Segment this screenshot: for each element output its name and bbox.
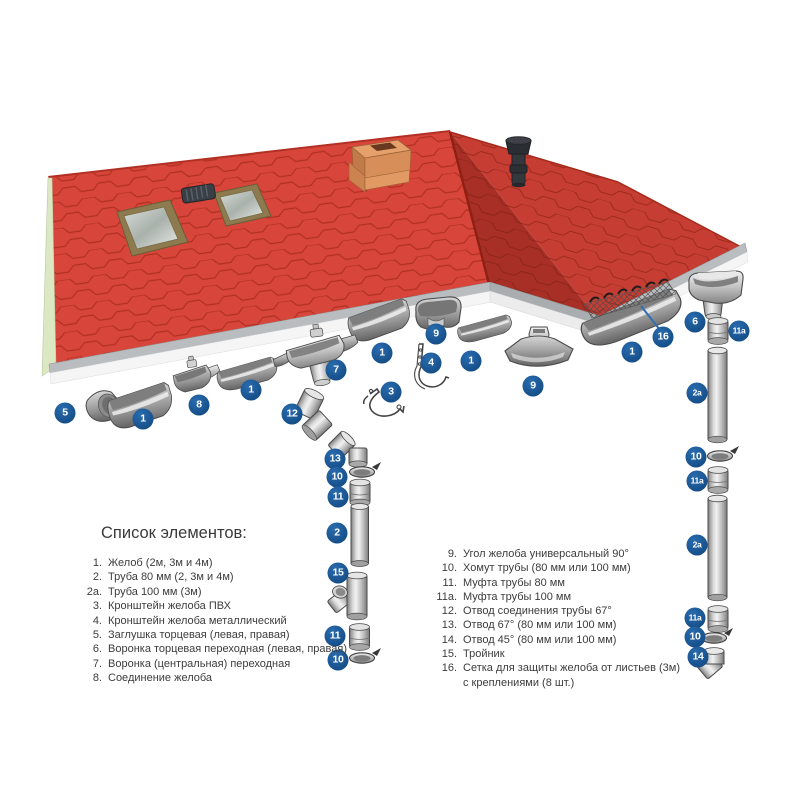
legend-item: 4.Кронштейн желоба металлический bbox=[84, 614, 347, 628]
part-badge-1: 1 bbox=[241, 380, 262, 401]
legend-item: 12.Отвод соединения трубы 67° bbox=[427, 604, 680, 618]
legend-item: 5.Заглушка торцевая (левая, правая) bbox=[84, 628, 347, 642]
part-badge-3: 3 bbox=[381, 382, 402, 403]
part-badge-12: 12 bbox=[282, 404, 303, 425]
legend-item-text: Отвод соединения трубы 67° bbox=[463, 604, 612, 618]
legend-item: 11а.Муфта трубы 100 мм bbox=[427, 590, 680, 604]
legend-item: 2.Труба 80 мм (2, 3м и 4м) bbox=[84, 570, 347, 584]
legend-item-text: Муфта трубы 100 мм bbox=[463, 590, 571, 604]
part-badge-1: 1 bbox=[133, 409, 154, 430]
legend-item: 3.Кронштейн желоба ПВХ bbox=[84, 599, 347, 613]
part-coupling-11-2 bbox=[350, 624, 370, 651]
legend-item-text: Кронштейн желоба металлический bbox=[108, 614, 287, 628]
part-badge-10: 10 bbox=[686, 447, 707, 468]
legend-item-number: 14. bbox=[427, 633, 457, 647]
legend-item-text: Заглушка торцевая (левая, правая) bbox=[108, 628, 290, 642]
part-pipe-2a-1 bbox=[708, 347, 727, 443]
legend-item-text: Желоб (2м, 3м и 4м) bbox=[108, 556, 213, 570]
legend-item-text: Хомут трубы (80 мм или 100 мм) bbox=[463, 561, 631, 575]
legend-item: 16.Сетка для защиты желоба от листьев (3… bbox=[427, 661, 680, 690]
part-badge-4: 4 bbox=[421, 353, 442, 374]
part-coupling-11a-2 bbox=[708, 467, 728, 494]
legend-item-number: 11а. bbox=[427, 590, 457, 604]
part-coupling-11a-1 bbox=[708, 318, 728, 345]
legend-item: 8.Соединение желоба bbox=[84, 671, 347, 685]
part-badge-6: 6 bbox=[685, 312, 706, 333]
part-clamp-10-r1 bbox=[708, 446, 740, 461]
legend-item-number: 13. bbox=[427, 618, 457, 632]
part-badge-14: 14 bbox=[688, 647, 709, 668]
legend-item-text: Угол желоба универсальный 90° bbox=[463, 547, 629, 561]
part-badge-1: 1 bbox=[622, 342, 643, 363]
part-badge-10: 10 bbox=[327, 467, 348, 488]
legend-item: 10.Хомут трубы (80 мм или 100 мм) bbox=[427, 561, 680, 575]
legend-item-number: 2а. bbox=[84, 585, 102, 599]
legend-item-number: 12. bbox=[427, 604, 457, 618]
legend-item-number: 1. bbox=[84, 556, 102, 570]
part-pipe-2 bbox=[351, 504, 369, 567]
legend-item-number: 10. bbox=[427, 561, 457, 575]
legend-item-number: 4. bbox=[84, 614, 102, 628]
legend-item: 11.Муфта трубы 80 мм bbox=[427, 576, 680, 590]
legend-item-text: Кронштейн желоба ПВХ bbox=[108, 599, 231, 613]
part-badge-2а: 2а bbox=[687, 383, 708, 404]
legend-item-text: Воронка торцевая переходная (левая, прав… bbox=[108, 642, 347, 656]
legend-item-number: 11. bbox=[427, 576, 457, 590]
legend-item-number: 3. bbox=[84, 599, 102, 613]
legend-item-text: Воронка (центральная) переходная bbox=[108, 657, 290, 671]
legend-item: 13.Отвод 67° (80 мм или 100 мм) bbox=[427, 618, 680, 632]
part-badge-11а: 11а bbox=[687, 471, 708, 492]
legend-item-text: Труба 80 мм (2, 3м и 4м) bbox=[108, 570, 234, 584]
part-badge-1: 1 bbox=[461, 351, 482, 372]
legend-column-right: 9.Угол желоба универсальный 90°10.Хомут … bbox=[427, 547, 680, 690]
legend-item-number: 7. bbox=[84, 657, 102, 671]
part-badge-9: 9 bbox=[426, 324, 447, 345]
legend-item: 14.Отвод 45° (80 мм или 100 мм) bbox=[427, 633, 680, 647]
legend-item-text: Отвод 67° (80 мм или 100 мм) bbox=[463, 618, 616, 632]
part-badge-9: 9 bbox=[523, 376, 544, 397]
part-badge-11: 11 bbox=[328, 487, 349, 508]
legend-item-text: Тройник bbox=[463, 647, 505, 661]
legend-item-number: 9. bbox=[427, 547, 457, 561]
legend-item-number: 5. bbox=[84, 628, 102, 642]
legend-item: 7.Воронка (центральная) переходная bbox=[84, 657, 347, 671]
legend-item: 1.Желоб (2м, 3м и 4м) bbox=[84, 556, 347, 570]
legend-item-number: 2. bbox=[84, 570, 102, 584]
part-badge-8: 8 bbox=[189, 395, 210, 416]
legend-item-text: Труба 100 мм (3м) bbox=[108, 585, 202, 599]
legend-item-number: 8. bbox=[84, 671, 102, 685]
part-badge-16: 16 bbox=[653, 327, 674, 348]
part-gutter-1d bbox=[456, 314, 514, 343]
legend-item-text: Муфта трубы 80 мм bbox=[463, 576, 565, 590]
part-pipe-2a-2 bbox=[708, 495, 727, 601]
part-badge-11а: 11а bbox=[729, 321, 750, 342]
legend-item-text: Отвод 45° (80 мм или 100 мм) bbox=[463, 633, 616, 647]
part-badge-7: 7 bbox=[326, 360, 347, 381]
legend-title: Список элементов: bbox=[101, 524, 247, 543]
part-badge-5: 5 bbox=[55, 403, 76, 424]
legend-item-text: Соединение желоба bbox=[108, 671, 212, 685]
legend-item: 9.Угол желоба универсальный 90° bbox=[427, 547, 680, 561]
part-badge-10: 10 bbox=[685, 627, 706, 648]
part-badge-11а: 11а bbox=[685, 608, 706, 629]
part-badge-2а: 2а bbox=[687, 535, 708, 556]
legend-item: 6.Воронка торцевая переходная (левая, пр… bbox=[84, 642, 347, 656]
legend-item: 15.Тройник bbox=[427, 647, 680, 661]
legend-item-number: 16. bbox=[427, 661, 457, 690]
part-clamp-10-c2 bbox=[350, 648, 382, 663]
part-badge-2: 2 bbox=[327, 523, 348, 544]
legend-item-number: 6. bbox=[84, 642, 102, 656]
legend-item-number: 15. bbox=[427, 647, 457, 661]
part-badge-1: 1 bbox=[372, 343, 393, 364]
legend-item: 2а.Труба 100 мм (3м) bbox=[84, 585, 347, 599]
legend-item-text: Сетка для защиты желоба от листьев (3м)с… bbox=[463, 661, 680, 690]
part-corner-9b bbox=[505, 327, 573, 366]
diagram-stage: 5181712319419116611а2а1011а2а11а10141310… bbox=[0, 0, 800, 800]
legend-column-left: 1.Желоб (2м, 3м и 4м)2.Труба 80 мм (2, 3… bbox=[84, 556, 347, 686]
part-coupling-11a-3 bbox=[708, 606, 728, 633]
part-coupling-11-1 bbox=[350, 479, 370, 506]
